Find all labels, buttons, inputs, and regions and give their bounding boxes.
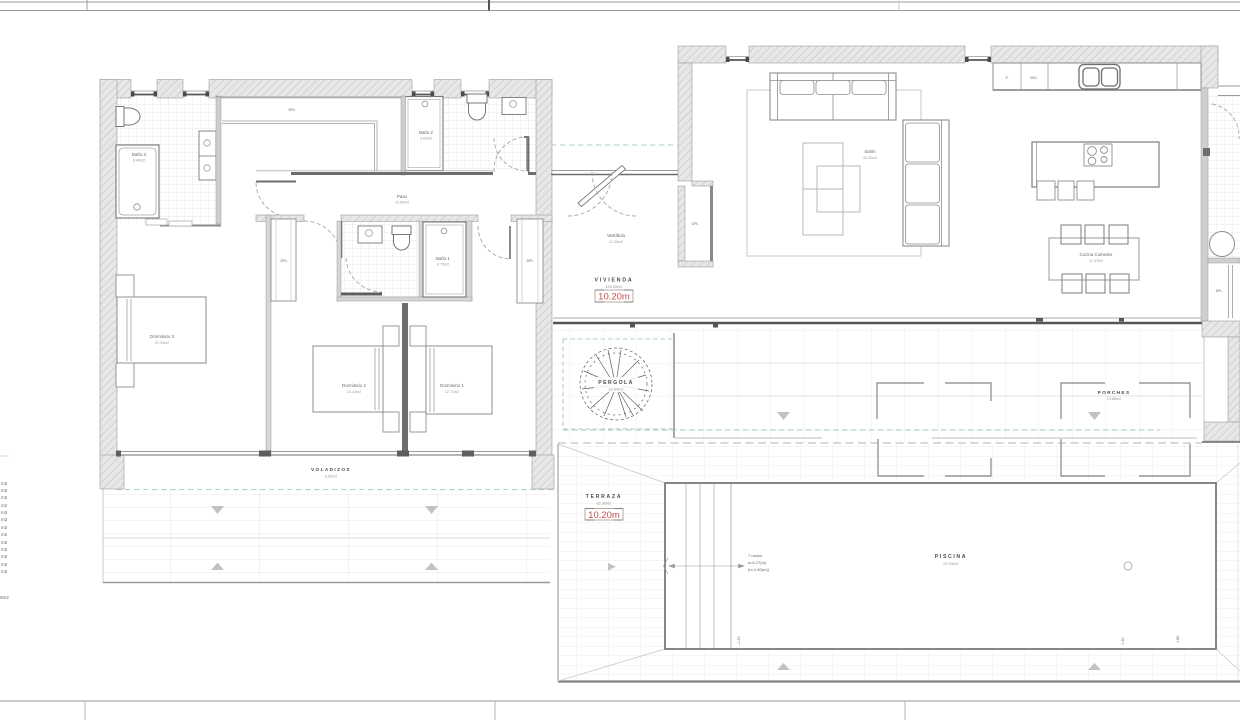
svg-text:6.40m2: 6.40m2 — [133, 159, 145, 163]
svg-text:DPL: DPL — [289, 108, 296, 112]
svg-text:105.55m2: 105.55m2 — [606, 285, 623, 289]
svg-text:PERGOLA: PERGOLA — [598, 380, 633, 386]
svg-text:13.42m2: 13.42m2 — [347, 390, 361, 394]
svg-text:Dormitorio 3: Dormitorio 3 — [150, 334, 174, 339]
svg-text:21.24m2: 21.24m2 — [155, 341, 169, 345]
svg-text:m2: m2 — [1, 569, 8, 574]
svg-text:4.73m2: 4.73m2 — [437, 263, 449, 267]
svg-text:DPL: DPL — [692, 222, 699, 226]
svg-text:VOLADIZOS: VOLADIZOS — [311, 467, 351, 472]
svg-text:PISCINA: PISCINA — [935, 554, 967, 560]
svg-text:40.30m2: 40.30m2 — [863, 156, 877, 160]
svg-text:8.59m2: 8.59m2 — [325, 475, 337, 479]
svg-text:m2: m2 — [1, 547, 8, 552]
svg-text:0m2: 0m2 — [0, 595, 9, 600]
svg-text:1.40: 1.40 — [1121, 638, 1125, 645]
svg-text:15.90m2: 15.90m2 — [395, 201, 409, 205]
svg-text:F.: F. — [1006, 76, 1009, 80]
svg-text:DPL: DPL — [281, 259, 288, 263]
svg-text:12.39m2: 12.39m2 — [609, 240, 623, 244]
svg-text:m2: m2 — [1, 562, 8, 567]
svg-text:Baño 2: Baño 2 — [419, 130, 433, 135]
svg-text:Dormitorio 1: Dormitorio 1 — [440, 383, 464, 388]
svg-text:m2: m2 — [1, 510, 8, 515]
svg-text:7 nados: 7 nados — [748, 553, 762, 558]
svg-text:m2: m2 — [1, 495, 8, 500]
svg-text:DPL: DPL — [1216, 289, 1223, 293]
svg-text:Paso: Paso — [397, 194, 408, 199]
svg-text:m2: m2 — [1, 481, 8, 486]
svg-text:DPL: DPL — [527, 259, 534, 263]
svg-text:MO.: MO. — [1030, 76, 1037, 80]
svg-text:10.20m: 10.20m — [598, 292, 630, 303]
svg-text:Cocina Comedor: Cocina Comedor — [1080, 252, 1113, 257]
svg-text:Baño 3: Baño 3 — [132, 152, 146, 157]
svg-text:-1.20: -1.20 — [737, 636, 741, 645]
svg-text:52.59m2: 52.59m2 — [943, 561, 958, 566]
svg-text:a=0.27(m): a=0.27(m) — [748, 560, 767, 565]
svg-text:m2: m2 — [1, 517, 8, 522]
svg-text:37.47m2: 37.47m2 — [1089, 259, 1103, 263]
svg-text:m2: m2 — [1, 525, 8, 530]
svg-text:m2: m2 — [1, 488, 8, 493]
svg-text:(h=1.60(m)): (h=1.60(m)) — [748, 567, 770, 572]
svg-text:m2: m2 — [1, 532, 8, 537]
svg-text:PORCHES: PORCHES — [1098, 390, 1131, 396]
svg-text:Baño 1: Baño 1 — [436, 256, 450, 261]
svg-text:m2: m2 — [1, 554, 8, 559]
svg-text:m2: m2 — [1, 503, 8, 508]
svg-text:Vestíbulo: Vestíbulo — [607, 233, 626, 238]
svg-text:13.88m2: 13.88m2 — [1107, 397, 1122, 401]
svg-text:VIVIENDA: VIVIENDA — [595, 278, 634, 284]
svg-text:10.64m2: 10.64m2 — [608, 387, 623, 392]
svg-text:1.85: 1.85 — [1176, 636, 1180, 643]
svg-text:Salón: Salón — [864, 149, 876, 154]
svg-text:m2: m2 — [1, 540, 8, 545]
svg-text:3.63m2: 3.63m2 — [420, 137, 432, 141]
svg-text:TERRAZA: TERRAZA — [586, 494, 623, 500]
svg-text:12.71m2: 12.71m2 — [445, 390, 459, 394]
svg-text:Dormitorio 2: Dormitorio 2 — [342, 383, 366, 388]
svg-text:10.20m: 10.20m — [588, 510, 620, 521]
svg-text:82.36m2: 82.36m2 — [597, 502, 612, 506]
